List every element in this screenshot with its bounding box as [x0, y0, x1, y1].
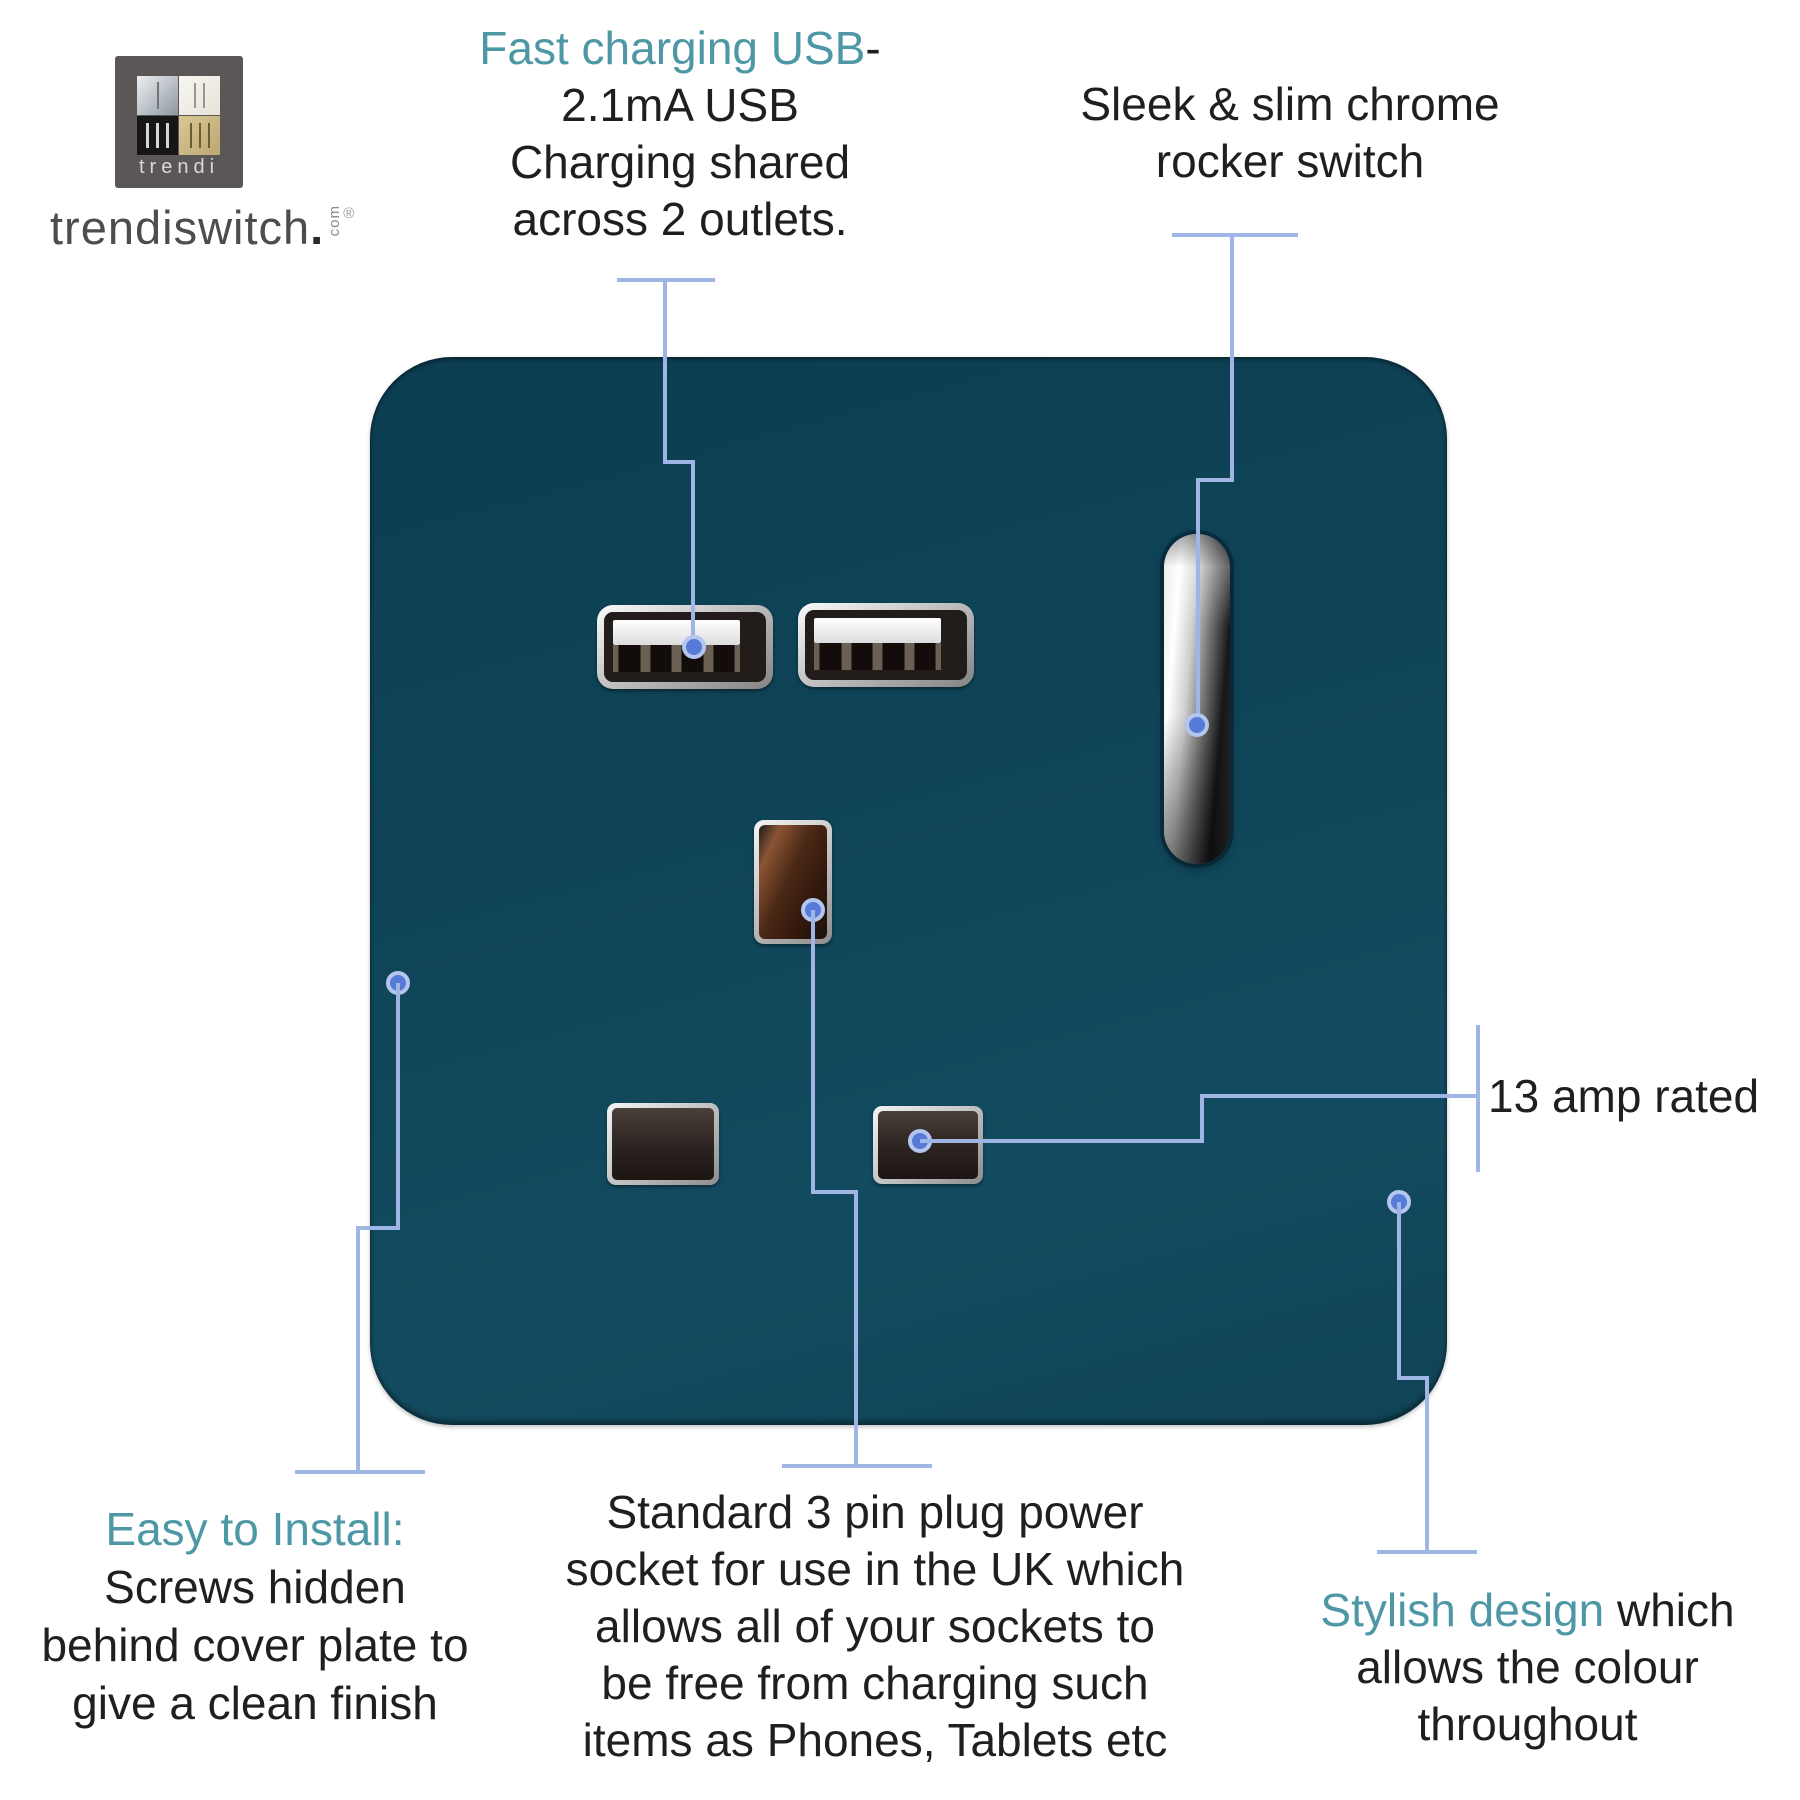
- socket-leader-line: [782, 1464, 932, 1468]
- logo-brand-label: trendi: [115, 156, 243, 179]
- socket-callout-line5: items as Phones, Tablets etc: [583, 1714, 1168, 1766]
- site-wordmark: trendiswitch.com®: [50, 200, 355, 255]
- rocker-callout-line1: Sleek & slim chrome: [1080, 78, 1499, 130]
- usb-port-right: [798, 603, 974, 687]
- stylish-callout-line3: throughout: [1418, 1698, 1638, 1750]
- stylish-callout-text: Stylish design which allows the colour t…: [1255, 1582, 1800, 1753]
- logo-switch-grid-icon: [137, 76, 220, 155]
- usb-callout-text: Fast charging USB- 2.1mA USB Charging sh…: [380, 20, 980, 248]
- usb-callout-line3: Charging shared: [510, 136, 850, 188]
- amp-leader-line: [1476, 1025, 1480, 1172]
- amp-leader-line: [920, 1139, 1204, 1143]
- usb-callout-heading-dash: -: [865, 22, 880, 74]
- rocker-leader-line: [1230, 233, 1234, 482]
- install-callout-text: Easy to Install: Screws hidden behind co…: [0, 1500, 510, 1732]
- usb-callout-line2: 2.1mA USB: [561, 79, 799, 131]
- stylish-leader-line: [1397, 1202, 1401, 1380]
- install-callout-line1: Screws hidden: [104, 1561, 406, 1613]
- socket-callout-line4: be free from charging such: [601, 1657, 1148, 1709]
- white-switch-icon: [179, 76, 220, 115]
- site-wordmark-tld: com: [326, 205, 343, 236]
- rocker-leader-line: [1196, 478, 1200, 728]
- install-callout-heading: Easy to Install:: [105, 1503, 404, 1555]
- usb-pins: [613, 645, 740, 672]
- usb-tongue: [814, 618, 941, 643]
- rocker-leader-line: [1172, 233, 1298, 237]
- black-switch-icon: [137, 116, 178, 155]
- socket-leader-line: [854, 1190, 858, 1468]
- amp-leader-line: [1200, 1094, 1480, 1098]
- socket-callout-line3: allows all of your sockets to: [595, 1600, 1155, 1652]
- usb-callout-line4: across 2 outlets.: [513, 193, 848, 245]
- trendi-logo: trendi: [115, 56, 243, 188]
- install-leader-line: [356, 1226, 360, 1474]
- amp-callout-text: 13 amp rated: [1488, 1068, 1800, 1125]
- rocker-leader-dot: [1185, 713, 1209, 737]
- install-callout-line3: give a clean finish: [72, 1677, 438, 1729]
- stylish-leader-line: [1425, 1376, 1429, 1554]
- rocker-callout-line2: rocker switch: [1156, 135, 1424, 187]
- stylish-callout-heading-rest: which: [1604, 1584, 1734, 1636]
- usb-tongue: [613, 620, 740, 645]
- live-pin-aperture: [607, 1103, 719, 1185]
- rocker-leader-line: [1198, 478, 1234, 482]
- stylish-callout-heading: Stylish design: [1320, 1584, 1604, 1636]
- registered-mark: ®: [343, 205, 355, 222]
- install-leader-line: [356, 1226, 400, 1230]
- install-callout-line2: behind cover plate to: [41, 1619, 468, 1671]
- gold-switch-icon: [179, 116, 220, 155]
- socket-leader-line: [811, 1190, 858, 1194]
- product-infographic: trendi trendiswitch.com® Fast charging U…: [0, 0, 1800, 1800]
- socket-plate: [370, 357, 1447, 1425]
- install-leader-line: [295, 1470, 425, 1474]
- usb-leader-dot: [682, 635, 706, 659]
- site-wordmark-dot: .: [310, 201, 324, 254]
- install-leader-line: [396, 983, 400, 1230]
- earth-pin-aperture: [754, 820, 832, 944]
- usb-leader-line: [663, 278, 667, 464]
- amp-leader-line: [1200, 1094, 1204, 1143]
- stylish-leader-line: [1377, 1550, 1477, 1554]
- socket-leader-line: [811, 910, 815, 1194]
- site-wordmark-text: trendiswitch: [50, 201, 310, 254]
- stylish-callout-line2: allows the colour: [1356, 1641, 1699, 1693]
- usb-leader-line: [691, 460, 695, 650]
- usb-callout-heading: Fast charging USB: [479, 22, 865, 74]
- rocker-callout-text: Sleek & slim chrome rocker switch: [1010, 76, 1570, 190]
- chrome-switch-icon: [137, 76, 178, 115]
- usb-pins: [814, 643, 941, 670]
- socket-callout-line1: Standard 3 pin plug power: [606, 1486, 1143, 1538]
- socket-callout-text: Standard 3 pin plug power socket for use…: [525, 1484, 1225, 1769]
- socket-callout-line2: socket for use in the UK which: [566, 1543, 1185, 1595]
- usb-port-right-cavity: [805, 610, 967, 680]
